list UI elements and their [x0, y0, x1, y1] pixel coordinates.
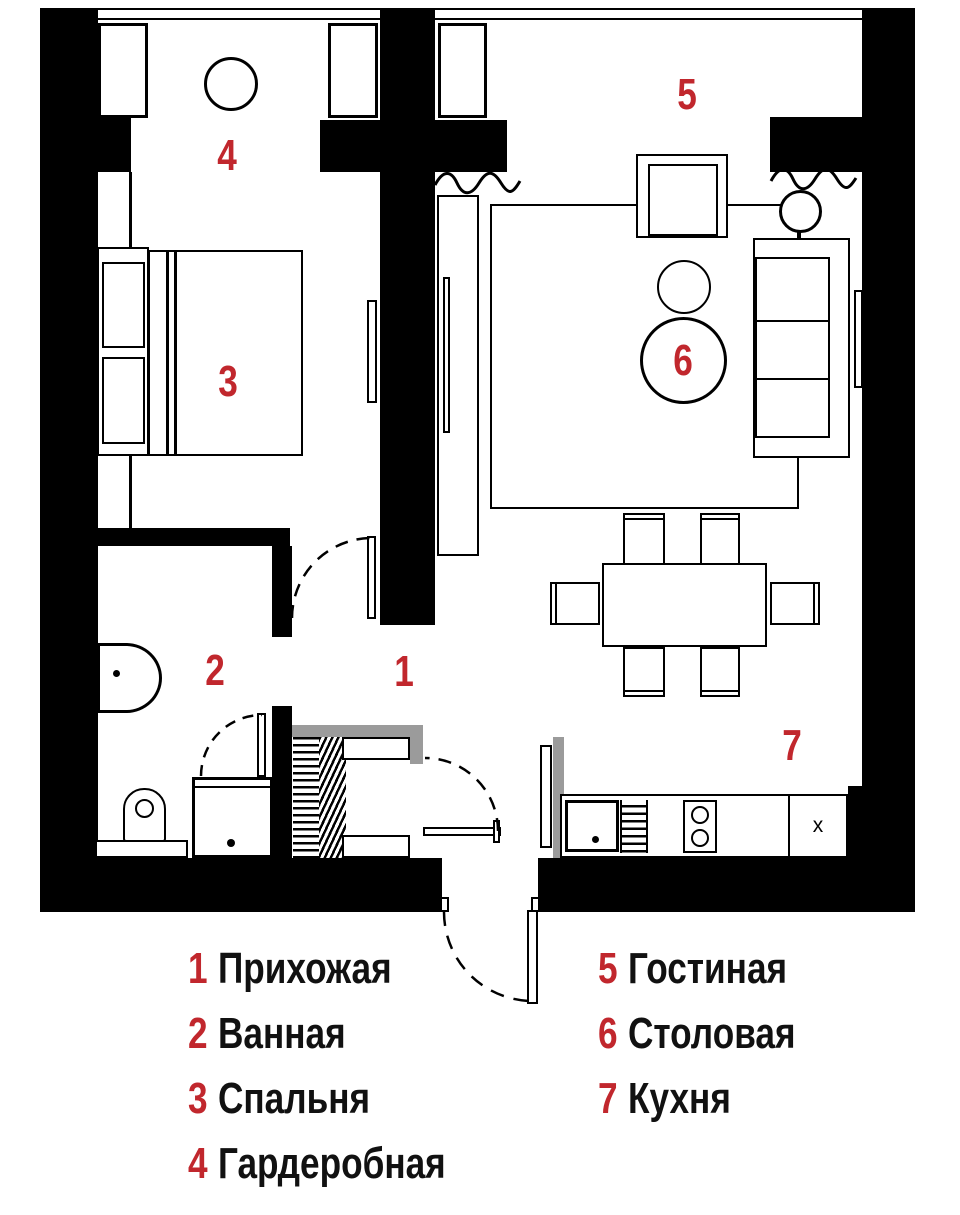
legend-item-living: 5Гостиная — [598, 936, 796, 1001]
wall-column-middle — [380, 8, 435, 625]
legend-number: 5 — [598, 936, 618, 1001]
tv-screen — [648, 164, 718, 236]
stove-burner-top — [691, 806, 709, 824]
legend-label: Прихожая — [218, 944, 392, 993]
floor-lamp — [779, 190, 822, 233]
hall-closet-door-cap — [493, 820, 500, 843]
legend-number: 2 — [188, 1001, 208, 1066]
stove-burner-bottom — [691, 829, 709, 847]
dining-chair-top-left — [623, 513, 665, 565]
chair-backrest-line — [813, 584, 815, 623]
sofa-seat — [755, 257, 830, 438]
hall-closet-shelf-bottom — [342, 835, 410, 858]
hall-closet-door-leaf — [423, 827, 501, 836]
legend-number: 3 — [188, 1066, 208, 1131]
bedroom-door-leaf — [367, 536, 376, 619]
toilet-bowl-circle — [135, 799, 154, 818]
bathroom-sink-drain — [113, 670, 120, 677]
legend-number: 7 — [598, 1066, 618, 1131]
hall-closet-shelf-top — [342, 737, 410, 760]
chair-backrest-line — [555, 584, 557, 623]
plan-number-bathroom: 2 — [205, 646, 225, 696]
legend-label: Спальня — [218, 1074, 370, 1123]
legend-column-left: 1Прихожая 2Ванная 3Спальня 4Гардеробная — [188, 936, 510, 1196]
bed-headboard-line-2 — [174, 252, 177, 454]
kitchen-sink — [565, 800, 619, 852]
dining-chair-left — [550, 582, 600, 625]
legend-item-kitchen: 7Кухня — [598, 1066, 796, 1131]
right-wall-window — [854, 290, 863, 388]
legend-label: Столовая — [628, 1009, 796, 1058]
kitchen-cabinet-x-label: x — [813, 814, 824, 838]
dining-chair-right — [770, 582, 820, 625]
legend-column-right: 5Гостиная 6Столовая 7Кухня — [598, 936, 845, 1131]
plan-number-dining: 6 — [673, 336, 693, 386]
bedroom-wall-line-upper — [129, 172, 132, 248]
legend-number: 1 — [188, 936, 208, 1001]
entry-door-frame-tick-left — [440, 897, 449, 912]
bed — [148, 250, 303, 456]
bedroom-door-arc — [292, 538, 372, 618]
plan-number-hallway: 1 — [394, 647, 414, 697]
toilet-base — [95, 840, 188, 858]
legend-label: Гостиная — [628, 944, 787, 993]
plan-number-living: 5 — [677, 70, 697, 120]
chair-backrest-line — [702, 690, 738, 692]
nightstand-lower — [102, 357, 145, 444]
wall-bathroom-right-upper — [272, 546, 292, 637]
side-table-small — [657, 260, 711, 314]
chair-backrest-line — [625, 518, 663, 520]
dining-chair-top-right — [700, 513, 740, 565]
sofa-cushion-line-2 — [757, 378, 828, 380]
living-closet-top — [438, 23, 487, 118]
dining-chair-bottom-right — [700, 647, 740, 697]
plan-number-wardrobe: 4 — [217, 131, 237, 181]
legend-item-dining: 6Столовая — [598, 1001, 796, 1066]
chair-backrest-line — [625, 690, 663, 692]
living-tall-cabinet-door-line — [443, 277, 450, 433]
wall-wing-middle — [320, 120, 507, 172]
curtain-right — [771, 169, 856, 189]
floor-plan-page: x 1 2 3 4 5 6 7 1Прихожая 2Ванная 3Спаль… — [0, 0, 960, 1215]
entry-door-leaf — [527, 910, 538, 1004]
window-band-top — [98, 8, 862, 20]
legend-label: Ванная — [218, 1009, 346, 1058]
legend-label: Кухня — [628, 1074, 731, 1123]
hall-closet-hangers-left — [293, 737, 319, 858]
bathroom-door-arc — [201, 715, 262, 776]
bed-headboard-line-1 — [166, 252, 169, 454]
bedroom-wall-panel — [367, 300, 377, 403]
curtain-left — [435, 173, 520, 193]
wall-bathroom-top — [97, 528, 290, 546]
legend-item-hallway: 1Прихожая — [188, 936, 446, 1001]
wall-left — [40, 8, 98, 912]
legend-item-bedroom: 3Спальня — [188, 1066, 446, 1131]
legend-item-bathroom: 2Ванная — [188, 1001, 446, 1066]
legend-label: Гардеробная — [218, 1139, 446, 1188]
nightstand-upper — [102, 262, 145, 348]
dining-chair-bottom-left — [623, 647, 665, 697]
plan-number-bedroom: 3 — [218, 357, 238, 407]
wall-bottom-left — [40, 858, 442, 912]
legend-number: 4 — [188, 1131, 208, 1196]
bathroom-sink — [97, 643, 162, 713]
washing-machine-top-line — [195, 786, 270, 788]
wall-kitchen-corner — [848, 786, 915, 912]
legend-item-wardrobe: 4Гардеробная — [188, 1131, 446, 1196]
chair-backrest-line — [702, 518, 738, 520]
dining-table — [602, 563, 767, 647]
kitchen-sink-drain — [592, 836, 599, 843]
legend-number: 6 — [598, 1001, 618, 1066]
bedroom-wall-line-lower — [129, 453, 132, 528]
sofa-cushion-line-1 — [757, 320, 828, 322]
plan-number-kitchen: 7 — [782, 721, 802, 771]
kitchen-cabinet-x: x — [788, 794, 848, 858]
hall-closet-door-arc — [425, 758, 498, 831]
wall-wing-right — [770, 117, 862, 172]
wall-right — [862, 8, 915, 912]
kitchen-drying-rack — [620, 800, 648, 853]
wardrobe-closet-middle — [328, 23, 378, 118]
hall-closet-frame-right — [410, 737, 423, 764]
wardrobe-closet-left — [98, 23, 148, 118]
bathroom-door-leaf — [257, 713, 266, 777]
washing-machine-knob — [227, 839, 235, 847]
kitchen-partition — [540, 745, 552, 848]
wall-notch-left — [97, 118, 131, 172]
wardrobe-stool — [204, 57, 258, 111]
wall-bathroom-right-lower — [272, 706, 292, 858]
hall-closet-frame-top — [292, 725, 423, 737]
